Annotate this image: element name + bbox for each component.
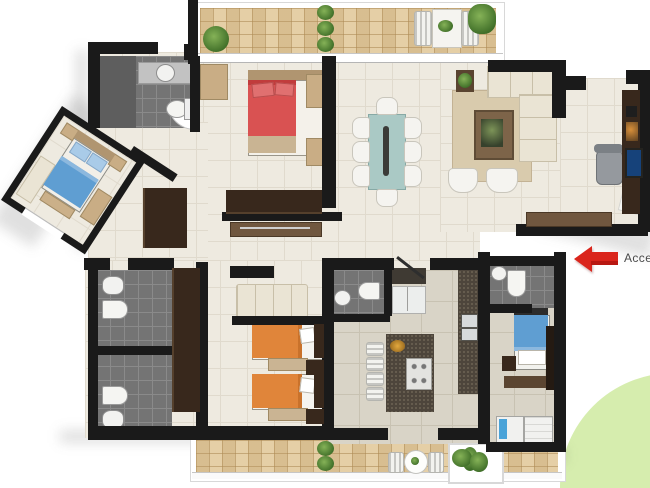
kitchen-sink [461, 328, 478, 341]
planter-plant-icon [458, 73, 472, 88]
dryer [524, 416, 553, 444]
desk-monitor-icon [625, 148, 643, 178]
bathroom2-toilet [102, 300, 128, 319]
wall [478, 252, 490, 444]
wall [564, 76, 586, 90]
bed-pillow [518, 350, 546, 365]
planter-plants-icon [470, 452, 488, 472]
office-chair-back [594, 144, 623, 153]
kids-bed-headboard [314, 324, 324, 358]
bed-pillow [274, 82, 294, 97]
bathroom1-shower [100, 56, 136, 128]
planter-plants-icon [452, 449, 472, 467]
entry-console [526, 212, 612, 227]
armchair [486, 168, 518, 193]
wall [230, 266, 274, 278]
kids-bed-headboard [314, 374, 324, 408]
coffee-table-decor [481, 119, 503, 147]
wall [190, 56, 200, 132]
service-bath-sink [491, 266, 507, 281]
terrace-plant-icon [317, 441, 334, 456]
armchair [448, 168, 478, 193]
wall [430, 258, 480, 270]
bedroom-wardrobe [226, 190, 322, 214]
orange-blanket [252, 324, 302, 358]
dining-chair [376, 97, 398, 115]
wall [328, 314, 390, 322]
powder-toilet [358, 282, 380, 300]
access-label: Acceso [624, 251, 650, 265]
bistro-chair [428, 452, 444, 473]
kids-nightstand [306, 409, 324, 424]
wall [232, 316, 324, 325]
wall [438, 428, 480, 440]
wall [92, 346, 172, 355]
hall-wardrobe [143, 188, 187, 248]
bar-stool [366, 357, 384, 371]
outdoor-table-centerpiece-icon [438, 20, 453, 32]
dining-chair [376, 189, 398, 207]
desk-picture [626, 122, 638, 141]
bar-stool [366, 387, 384, 401]
bistro-centerpiece-icon [411, 457, 419, 465]
service-shelf [504, 376, 550, 388]
wall [322, 56, 336, 208]
service-nightstand [502, 356, 516, 371]
wall [488, 304, 532, 313]
bottom-terrace-railing [192, 472, 562, 479]
island-bowl [390, 340, 405, 352]
bed-bench [268, 408, 308, 421]
fridge-divider [407, 287, 408, 311]
bathroom3-toilet [102, 386, 128, 405]
bar-stool [366, 372, 384, 386]
dining-chair [404, 141, 422, 163]
floor-plan-canvas: Acceso [0, 0, 650, 488]
sideboard-handles [240, 227, 310, 229]
wall [334, 428, 388, 440]
wall [554, 252, 566, 452]
family-sofa [236, 284, 308, 318]
dining-chair [352, 117, 370, 139]
wall [88, 426, 334, 440]
bed-pillow [251, 82, 274, 98]
closet-column [172, 268, 200, 412]
wall [486, 442, 558, 452]
terrace-plant-icon [317, 37, 334, 52]
bedroom-cabinet [200, 64, 228, 100]
bistro-chair [388, 452, 404, 473]
outdoor-chairs [414, 11, 432, 46]
access-arrow-icon [574, 246, 592, 272]
terrace-plant-icon [317, 21, 334, 36]
dining-chair [352, 141, 370, 163]
orange-blanket [252, 374, 302, 408]
table-runner [383, 126, 389, 176]
washer-door [499, 419, 507, 439]
powder-sink [334, 290, 351, 306]
wall [88, 42, 100, 128]
terrace-plant-icon [317, 5, 334, 20]
wall [384, 268, 392, 316]
fridge [392, 286, 426, 314]
kids-nightstand [306, 360, 324, 375]
green-circle-decoration [560, 373, 650, 488]
bathroom2-sink [102, 276, 124, 295]
dining-chair [404, 117, 422, 139]
terrace-plant-icon [203, 26, 229, 52]
bathroom1-sink [156, 64, 175, 82]
access-arrow-body [591, 252, 618, 265]
wall [128, 258, 174, 270]
service-bath-toilet [507, 270, 526, 297]
hall-sideboard [230, 222, 322, 237]
desk-item [626, 106, 637, 117]
bed-bench [268, 358, 308, 371]
kitchen-sink [461, 314, 478, 328]
office-chair [596, 150, 623, 185]
terrace-plant-icon [317, 456, 334, 471]
wall [488, 256, 556, 266]
dining-chair [404, 165, 422, 187]
bar-stool [366, 342, 384, 356]
dining-chair [352, 165, 370, 187]
terrace-palm-icon [468, 4, 496, 34]
cooktop [406, 358, 432, 390]
blue-blanket [514, 315, 548, 351]
top-terrace-railing [193, 53, 503, 63]
bed-foot-throw [248, 136, 296, 153]
